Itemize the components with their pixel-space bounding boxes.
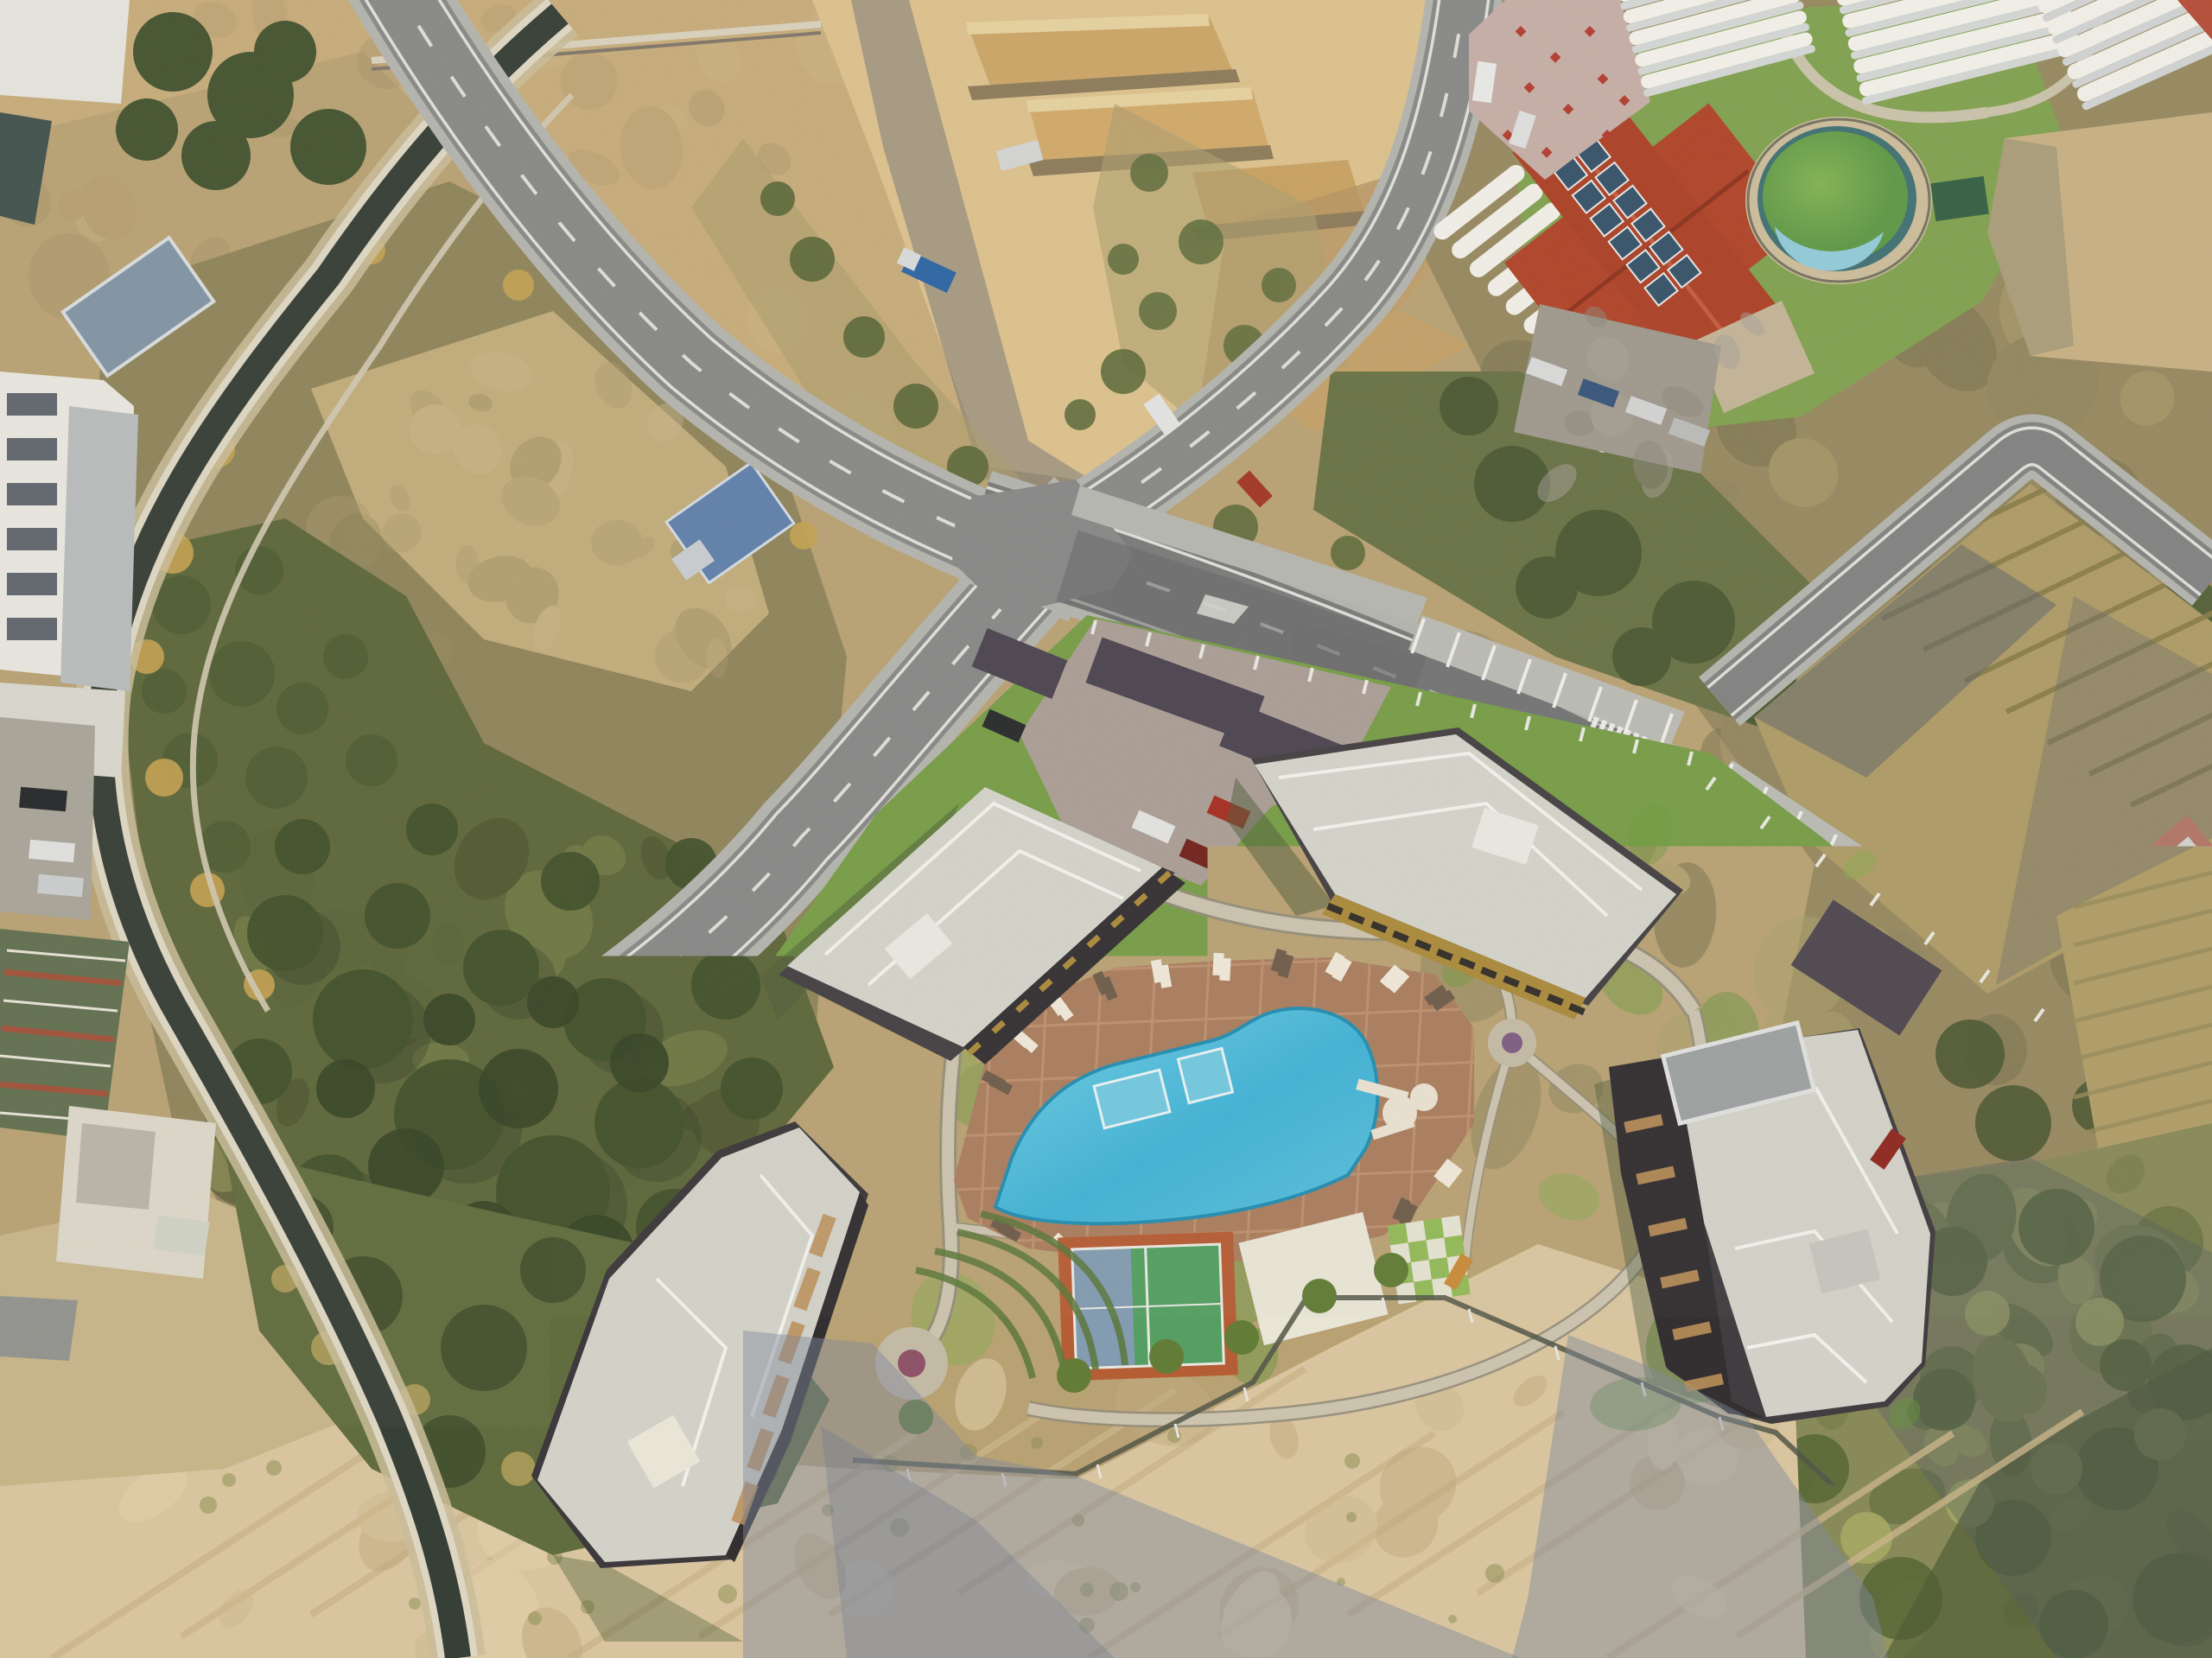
svg-text:EMERALD: EMERALD <box>1864 1519 2194 1588</box>
svg-text:© ALL INFORMATION IN THIS PHOT: © ALL INFORMATION IN THIS PHOTO IS COPYR… <box>36 1625 1303 1649</box>
svg-text:PARADISE: PARADISE <box>1924 1585 2137 1628</box>
